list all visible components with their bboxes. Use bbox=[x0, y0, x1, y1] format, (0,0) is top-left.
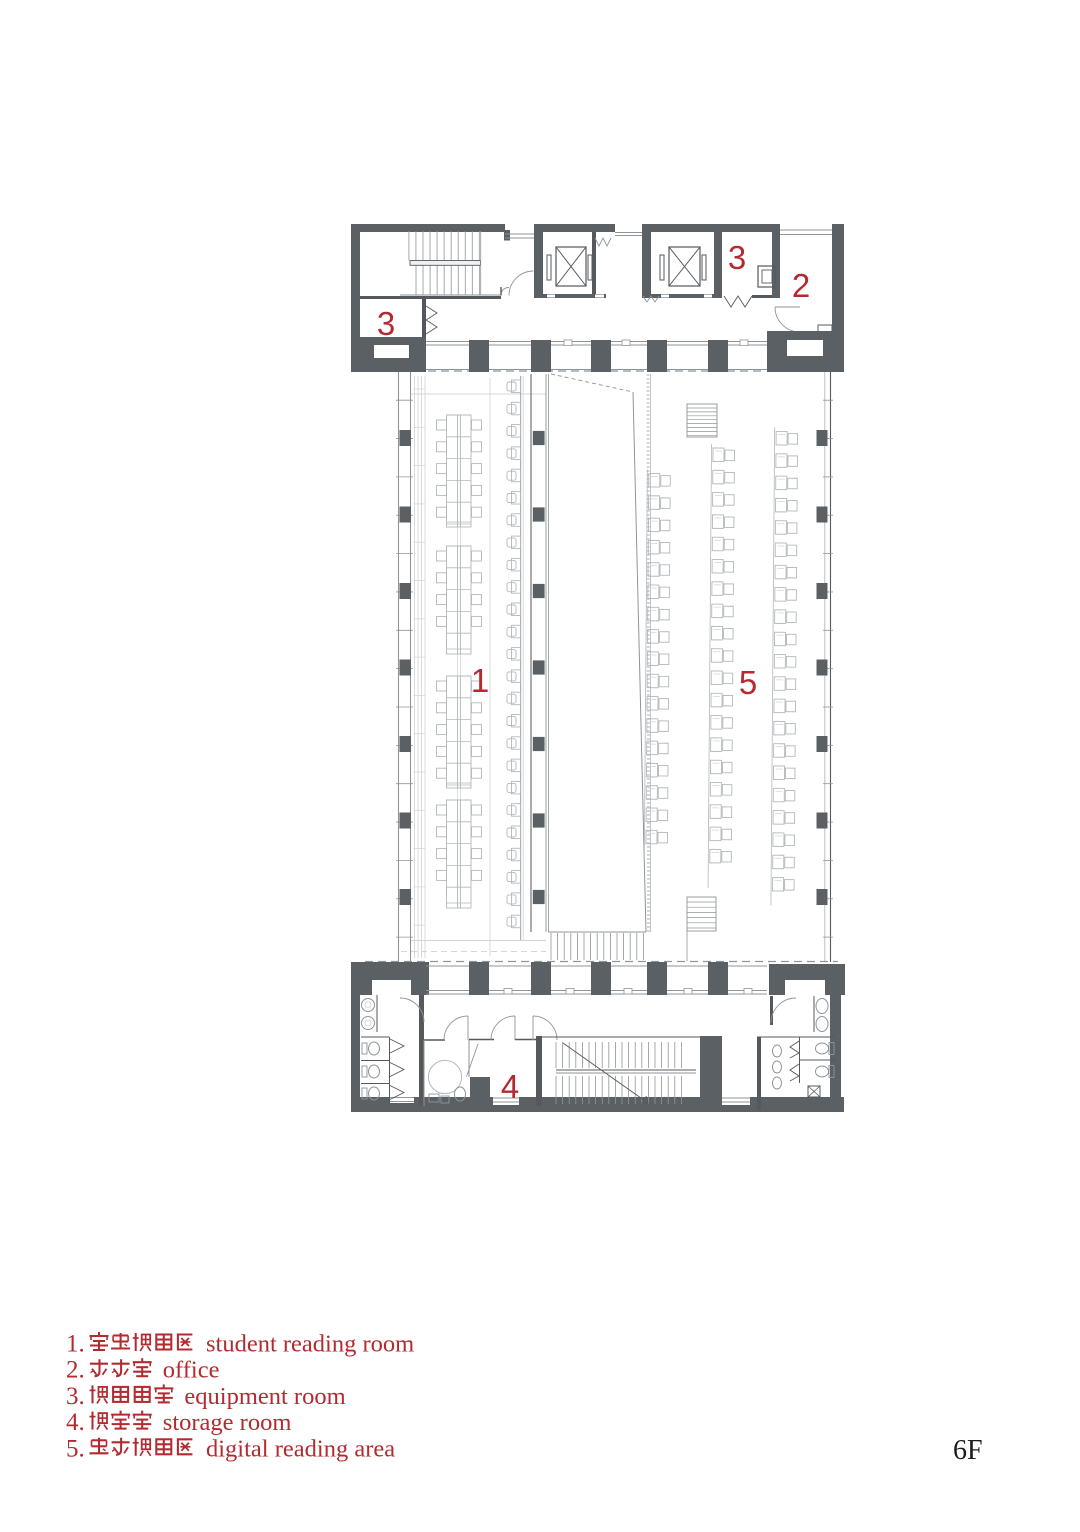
svg-text:2: 2 bbox=[792, 267, 810, 304]
svg-text:1: 1 bbox=[471, 662, 489, 699]
svg-text:3: 3 bbox=[377, 305, 395, 342]
svg-text:4: 4 bbox=[501, 1068, 519, 1105]
svg-text:5: 5 bbox=[739, 664, 757, 701]
svg-text:4.: 4. bbox=[66, 1409, 85, 1436]
svg-text:5.: 5. bbox=[66, 1435, 85, 1462]
svg-text:1.: 1. bbox=[66, 1331, 85, 1358]
svg-text:equipment room: equipment room bbox=[184, 1383, 345, 1410]
svg-text:digital reading area: digital reading area bbox=[206, 1435, 395, 1462]
svg-text:3: 3 bbox=[728, 239, 746, 276]
svg-text:office: office bbox=[163, 1357, 220, 1384]
svg-text:3.: 3. bbox=[66, 1383, 85, 1410]
svg-text:6F: 6F bbox=[953, 1435, 983, 1466]
svg-text:storage room: storage room bbox=[163, 1409, 292, 1436]
svg-text:student reading room: student reading room bbox=[206, 1331, 414, 1358]
svg-text:2.: 2. bbox=[66, 1357, 85, 1384]
